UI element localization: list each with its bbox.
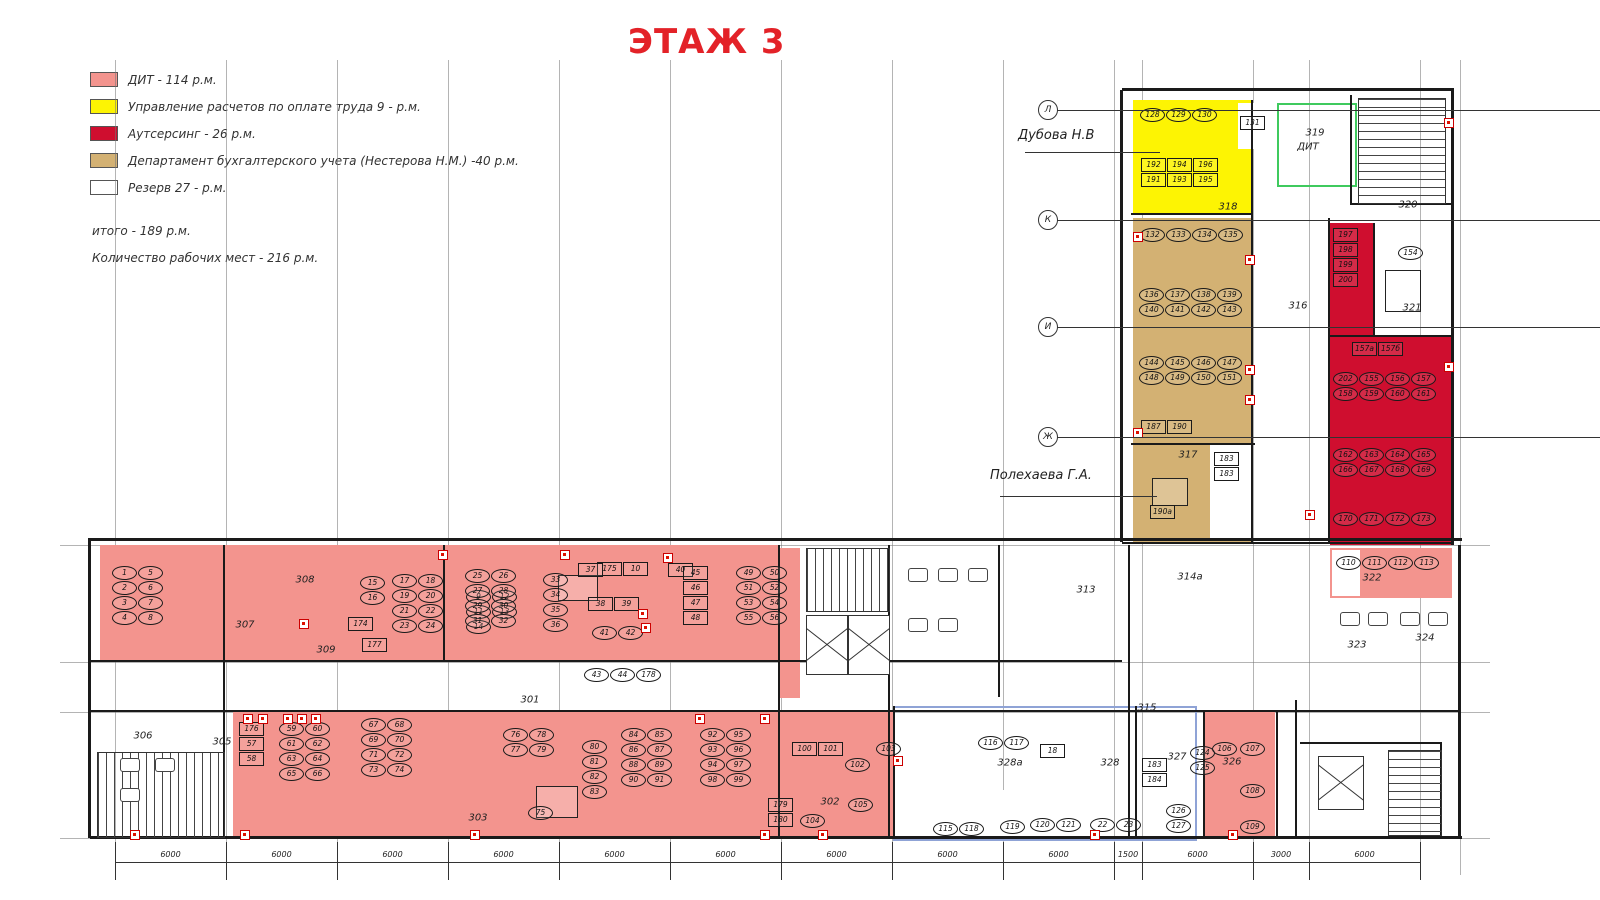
desk-cluster: 1516	[360, 576, 385, 605]
workplace-number: 121	[1056, 818, 1081, 832]
dimension-label: 6000	[604, 850, 624, 859]
workplace-number: 166	[1333, 463, 1358, 477]
workplace-number: 28	[491, 584, 516, 598]
workplace-number: 178	[636, 668, 661, 682]
fire-marker	[663, 553, 673, 563]
dimension-tick	[781, 842, 782, 880]
workplace-number: 38	[588, 597, 613, 611]
workplace-number: 67	[361, 718, 386, 732]
workplace-number: 84	[621, 728, 646, 742]
workplace-number: 102	[845, 758, 870, 772]
workplace-number: 2	[112, 581, 137, 595]
dimension-label: 6000	[1048, 850, 1068, 859]
workplace-number: 35	[543, 603, 568, 617]
workplace-number: 85	[647, 728, 672, 742]
room-number-label: 306	[133, 731, 152, 742]
desk-cluster: 33343536	[543, 573, 568, 632]
workplace-number: 155	[1359, 372, 1384, 386]
stairs-icon	[1388, 750, 1442, 836]
wall	[1131, 213, 1253, 215]
sanitary-fixture	[908, 618, 928, 632]
wall	[90, 538, 1462, 541]
workplace-number: 161	[1411, 387, 1436, 401]
workplace-number: 71	[361, 748, 386, 762]
workplace-number: 80	[582, 740, 607, 754]
workplace-number: 5	[138, 566, 163, 580]
workplace-number: 194	[1167, 158, 1192, 172]
workplace-number: 98	[700, 773, 725, 787]
workplace-number: 54	[762, 596, 787, 610]
workplace-number: 150	[1191, 371, 1216, 385]
desk-cluster: 105	[848, 798, 873, 812]
workplace-number: 154	[1398, 246, 1423, 260]
workplace-number: 22	[418, 604, 443, 618]
room-number-label: 328а	[997, 758, 1022, 769]
desk-cluster: 157а157б	[1352, 342, 1403, 356]
desk-cluster: 75	[528, 806, 553, 820]
desk-cluster: 126127	[1166, 804, 1191, 833]
fire-marker	[818, 830, 828, 840]
workplace-number: 7	[138, 596, 163, 610]
room-number-label: 328	[1100, 758, 1119, 769]
workplace-number: 17	[392, 574, 417, 588]
workplace-number: 75	[528, 806, 553, 820]
sanitary-fixture	[120, 788, 140, 802]
desk-cluster: 162163164165166167168169	[1333, 448, 1436, 477]
room-number-label: ДИТ	[1297, 142, 1318, 153]
desk-cluster: 4142	[592, 626, 643, 640]
workplace-number: 157а	[1352, 342, 1377, 356]
desk-cluster: 154	[1398, 246, 1423, 260]
workplace-number: 43	[584, 668, 609, 682]
desk-cluster: 179180	[768, 798, 793, 827]
workplace-number: 99	[726, 773, 751, 787]
desk-cluster: 9295939694979899	[700, 728, 751, 787]
workplace-number: 136	[1139, 288, 1164, 302]
fire-marker	[1245, 365, 1255, 375]
dimension-tick	[559, 842, 560, 880]
dimension-tick	[1309, 842, 1310, 880]
workplace-number: 183	[1142, 758, 1167, 772]
workplace-number: 171	[1359, 512, 1384, 526]
workplace-number: 24	[418, 619, 443, 633]
wall	[90, 710, 1460, 712]
workplace-number: 60	[305, 722, 330, 736]
workplace-number: 48	[683, 611, 708, 625]
workplace-number: 115	[933, 822, 958, 836]
workplace-number: 8	[138, 611, 163, 625]
desk-cluster: 3839	[588, 597, 639, 611]
workplace-number: 141	[1165, 303, 1190, 317]
workplace-number: 106	[1212, 742, 1237, 756]
dimension-tick	[1003, 842, 1004, 880]
desk-cluster: 106	[1212, 742, 1237, 756]
workplace-number: 116	[978, 736, 1003, 750]
workplace-number: 138	[1191, 288, 1216, 302]
desk-cluster: 5960616263646566	[279, 722, 330, 781]
fire-marker	[695, 714, 705, 724]
desk-cluster: 15263748	[112, 566, 163, 625]
annotation-label: Полехаева Г.А.	[990, 468, 1092, 483]
workplace-number: 52	[762, 581, 787, 595]
grid-axis-line	[1057, 327, 1600, 328]
fire-marker	[258, 714, 268, 724]
room-number-label: 314а	[1177, 572, 1202, 583]
wall	[1131, 443, 1255, 445]
room-number-label: 322	[1362, 573, 1381, 584]
workplace-number: 157	[1411, 372, 1436, 386]
workplace-number: 173	[1411, 512, 1436, 526]
dimension-label: 1500	[1118, 850, 1138, 859]
desk-cluster: 115118	[933, 822, 984, 836]
workplace-number: 192	[1141, 158, 1166, 172]
workplace-number: 53	[736, 596, 761, 610]
workplace-number: 79	[529, 743, 554, 757]
workplace-number: 49	[736, 566, 761, 580]
workplace-number: 126	[1166, 804, 1191, 818]
workplace-number: 145	[1165, 356, 1190, 370]
room-number-label: 324	[1415, 633, 1434, 644]
sanitary-fixture	[908, 568, 928, 582]
fire-marker	[130, 830, 140, 840]
desk-cluster: 119	[1000, 820, 1025, 834]
workplace-number: 184	[1142, 773, 1167, 787]
workplace-number: 70	[387, 733, 412, 747]
workplace-number: 159	[1359, 387, 1384, 401]
grid-axis-line	[1057, 110, 1600, 111]
stairs-icon	[1358, 98, 1446, 204]
workplace-number: 107	[1240, 742, 1265, 756]
wall	[1373, 223, 1375, 337]
desk-cluster: 102	[845, 758, 870, 772]
room-number-label: 303	[468, 813, 487, 824]
workplace-number: 36	[543, 618, 568, 632]
workplace-number: 199	[1333, 258, 1358, 272]
workplace-number: 93	[700, 743, 725, 757]
workplace-number: 95	[726, 728, 751, 742]
dimension-tick	[1253, 842, 1254, 880]
wall	[88, 538, 91, 838]
fire-marker	[760, 830, 770, 840]
workplace-number: 176	[239, 722, 264, 736]
wall	[1295, 700, 1297, 838]
dimension-label: 6000	[715, 850, 735, 859]
dimension-line	[115, 862, 1420, 863]
sanitary-fixture	[1428, 612, 1448, 626]
desk-cluster: 192194196191193195	[1141, 158, 1218, 187]
workplace-number: 33	[543, 573, 568, 587]
workplace-number: 101	[818, 742, 843, 756]
workplace-number: 97	[726, 758, 751, 772]
workplace-number: 78	[529, 728, 554, 742]
workplace-number: 25	[465, 569, 490, 583]
workplace-number: 193	[1167, 173, 1192, 187]
workplace-number: 29	[465, 599, 490, 613]
wall	[1120, 90, 1123, 542]
workplace-number: 134	[1192, 228, 1217, 242]
workplace-number: 58	[239, 752, 264, 766]
fire-marker	[243, 714, 253, 724]
fire-marker	[560, 550, 570, 560]
wall	[1330, 335, 1452, 337]
room-number-label: 309	[316, 645, 335, 656]
fire-marker	[1245, 395, 1255, 405]
dimension-tick	[1114, 842, 1115, 880]
workplace-number: 1	[112, 566, 137, 580]
workplace-number: 73	[361, 763, 386, 777]
workplace-number: 113	[1414, 556, 1439, 570]
workplace-number: 183	[1214, 467, 1239, 481]
workplace-number: 100	[792, 742, 817, 756]
workplace-number: 62	[305, 737, 330, 751]
workplace-number: 90	[621, 773, 646, 787]
desk-cluster: 183184	[1142, 758, 1167, 787]
workplace-number: 21	[392, 604, 417, 618]
workplace-number: 55	[736, 611, 761, 625]
workplace-number: 44	[610, 668, 635, 682]
workplace-number: 23	[392, 619, 417, 633]
fire-marker	[1133, 232, 1143, 242]
fire-marker	[1228, 830, 1238, 840]
workplace-number: 169	[1411, 463, 1436, 477]
workplace-number: 162	[1333, 448, 1358, 462]
workplace-number: 143	[1217, 303, 1242, 317]
fire-marker	[1444, 118, 1454, 128]
desk-cluster: 8485868788899091	[621, 728, 672, 787]
workplace-number: 31	[465, 614, 490, 628]
fire-marker	[297, 714, 307, 724]
wall	[1122, 542, 1454, 544]
desk-cluster: 120121	[1030, 818, 1081, 832]
room-number-label: 315	[1137, 703, 1156, 714]
wall	[1451, 90, 1454, 545]
workplace-number: 119	[1000, 820, 1025, 834]
workplace-number: 164	[1385, 448, 1410, 462]
annotation-label: Дубова Н.В	[1018, 128, 1094, 143]
dimension-tick	[337, 842, 338, 880]
workplace-number: 15	[360, 576, 385, 590]
workplace-number: 133	[1166, 228, 1191, 242]
desk-cluster: 187190	[1141, 420, 1192, 434]
workplace-number: 72	[387, 748, 412, 762]
workplace-number: 118	[959, 822, 984, 836]
meeting-table	[1152, 478, 1188, 506]
workplace-number: 163	[1359, 448, 1384, 462]
desk-cluster: 17510	[597, 562, 648, 576]
stairs-icon	[806, 548, 890, 612]
workplace-number: 94	[700, 758, 725, 772]
fire-marker	[893, 756, 903, 766]
workplace-number: 195	[1193, 173, 1218, 187]
elevator-icon	[1318, 756, 1364, 810]
workplace-number: 111	[1362, 556, 1387, 570]
desk-cluster: 45464748	[683, 566, 708, 625]
dimension-tick	[670, 842, 671, 880]
grid-axis-circle: И	[1038, 317, 1058, 337]
dimension-label: 6000	[382, 850, 402, 859]
workplace-number: 179	[768, 798, 793, 812]
workplace-number: 39	[614, 597, 639, 611]
workplace-number: 89	[647, 758, 672, 772]
workplace-number: 191	[1141, 173, 1166, 187]
desk-cluster: 76787779	[503, 728, 554, 757]
workplace-number: 30	[491, 599, 516, 613]
dimension-tick	[115, 842, 116, 880]
floor-plan-drawing: 1526374817417510912111314151617717181920…	[0, 0, 1600, 900]
desk-cluster: 6768697071727374	[361, 718, 412, 777]
fire-marker	[470, 830, 480, 840]
fire-marker	[760, 714, 770, 724]
fire-marker	[641, 623, 651, 633]
workplace-number: 148	[1139, 371, 1164, 385]
dimension-label: 6000	[271, 850, 291, 859]
desk-cluster: 110111112113	[1336, 556, 1439, 570]
dimension-label: 6000	[493, 850, 513, 859]
workplace-number: 76	[503, 728, 528, 742]
workplace-number: 19	[392, 589, 417, 603]
workplace-number: 41	[592, 626, 617, 640]
sanitary-fixture	[1368, 612, 1388, 626]
workplace-number: 83	[582, 785, 607, 799]
workplace-number: 57	[239, 737, 264, 751]
wall	[998, 545, 1000, 697]
workplace-number: 149	[1165, 371, 1190, 385]
workplace-number: 139	[1217, 288, 1242, 302]
sanitary-fixture	[938, 618, 958, 632]
desk-cluster: 116117	[978, 736, 1029, 750]
workplace-number: 64	[305, 752, 330, 766]
workplace-number: 77	[503, 743, 528, 757]
workplace-number: 177	[362, 638, 387, 652]
dimension-label: 6000	[1187, 850, 1207, 859]
sanitary-fixture	[120, 758, 140, 772]
sanitary-fixture	[155, 758, 175, 772]
fire-marker	[299, 619, 309, 629]
dimension-tick	[892, 842, 893, 880]
floor-plan-page: ЭТАЖ 3 ДИТ - 114 р.м.Управление расчетов…	[0, 0, 1600, 900]
workplace-number: 144	[1139, 356, 1164, 370]
workplace-number: 91	[647, 773, 672, 787]
desk-cluster: 109	[1240, 820, 1265, 834]
workplace-number: 32	[491, 614, 516, 628]
workplace-number: 23	[1116, 818, 1141, 832]
desk-cluster: 104	[800, 814, 825, 828]
workplace-number: 74	[387, 763, 412, 777]
workplace-number: 105	[848, 798, 873, 812]
elevator-icon	[848, 615, 890, 675]
dimension-label: 6000	[937, 850, 957, 859]
dimension-label: 3000	[1271, 850, 1291, 859]
room-number-label: 307	[235, 620, 254, 631]
wall	[1328, 218, 1330, 543]
workplace-number: 4	[112, 611, 137, 625]
wall	[1300, 742, 1442, 744]
wall	[893, 706, 895, 836]
sanitary-fixture	[1400, 612, 1420, 626]
desk-cluster: 183183	[1214, 452, 1239, 481]
sanitary-fixture	[968, 568, 988, 582]
wall	[1135, 706, 1137, 836]
workplace-number: 27	[465, 584, 490, 598]
room-number-label: 319	[1305, 128, 1324, 139]
workplace-number: 174	[348, 617, 373, 631]
desk-cluster: 4344178	[584, 668, 661, 682]
desk-cluster: 202155156157158159160161	[1333, 372, 1436, 401]
workplace-number: 196	[1193, 158, 1218, 172]
workplace-number: 109	[1240, 820, 1265, 834]
desk-cluster: 131	[1240, 116, 1265, 130]
desk-cluster: 4950515253545556	[736, 566, 787, 625]
workplace-number: 86	[621, 743, 646, 757]
desk-cluster: 174	[348, 617, 373, 631]
workplace-number: 158	[1333, 387, 1358, 401]
workplace-number: 103	[876, 742, 901, 756]
workplace-number: 45	[683, 566, 708, 580]
workplace-number: 68	[387, 718, 412, 732]
annotation-leader-line	[1025, 152, 1160, 153]
workplace-number: 117	[1004, 736, 1029, 750]
workplace-number: 3	[112, 596, 137, 610]
fire-marker	[1444, 362, 1454, 372]
workplace-number: 69	[361, 733, 386, 747]
grid-axis-circle: Ж	[1038, 427, 1058, 447]
grid-line-horizontal	[60, 662, 1490, 663]
department-zone	[233, 710, 893, 838]
workplace-number: 92	[700, 728, 725, 742]
room-number-label: 320	[1398, 200, 1417, 211]
workplace-number: 132	[1140, 228, 1165, 242]
workplace-number: 10	[623, 562, 648, 576]
desk-cluster: 107	[1240, 742, 1265, 756]
workplace-number: 6	[138, 581, 163, 595]
elevator-icon	[806, 615, 848, 675]
workplace-number: 82	[582, 770, 607, 784]
desk-cluster: 1718192021222324	[392, 574, 443, 633]
workplace-number: 112	[1388, 556, 1413, 570]
workplace-number: 34	[543, 588, 568, 602]
grid-axis-circle: Л	[1038, 100, 1058, 120]
workplace-number: 63	[279, 752, 304, 766]
workplace-number: 50	[762, 566, 787, 580]
desk-cluster: 144145146147148149150151	[1139, 356, 1242, 385]
annotation-leader-line	[1000, 496, 1157, 497]
workplace-number: 88	[621, 758, 646, 772]
dimension-tick	[226, 842, 227, 880]
wall	[1276, 710, 1278, 838]
workplace-number: 190а	[1150, 505, 1175, 519]
workplace-number: 18	[418, 574, 443, 588]
workplace-number: 202	[1333, 372, 1358, 386]
wall	[1122, 88, 1454, 91]
desk-cluster: 103	[876, 742, 901, 756]
desk-cluster: 177	[362, 638, 387, 652]
fire-marker	[1305, 510, 1315, 520]
wall	[90, 660, 1122, 662]
dimension-label: 6000	[160, 850, 180, 859]
workplace-number: 37	[578, 563, 603, 577]
workplace-number: 46	[683, 581, 708, 595]
room-number-label: 318	[1218, 202, 1237, 213]
workplace-number: 47	[683, 596, 708, 610]
workplace-number: 16	[360, 591, 385, 605]
workplace-number: 131	[1240, 116, 1265, 130]
workplace-number: 42	[618, 626, 643, 640]
wall	[90, 836, 1462, 839]
workplace-number: 135	[1218, 228, 1243, 242]
workplace-number: 66	[305, 767, 330, 781]
workplace-number: 156	[1385, 372, 1410, 386]
workplace-number: 65	[279, 767, 304, 781]
